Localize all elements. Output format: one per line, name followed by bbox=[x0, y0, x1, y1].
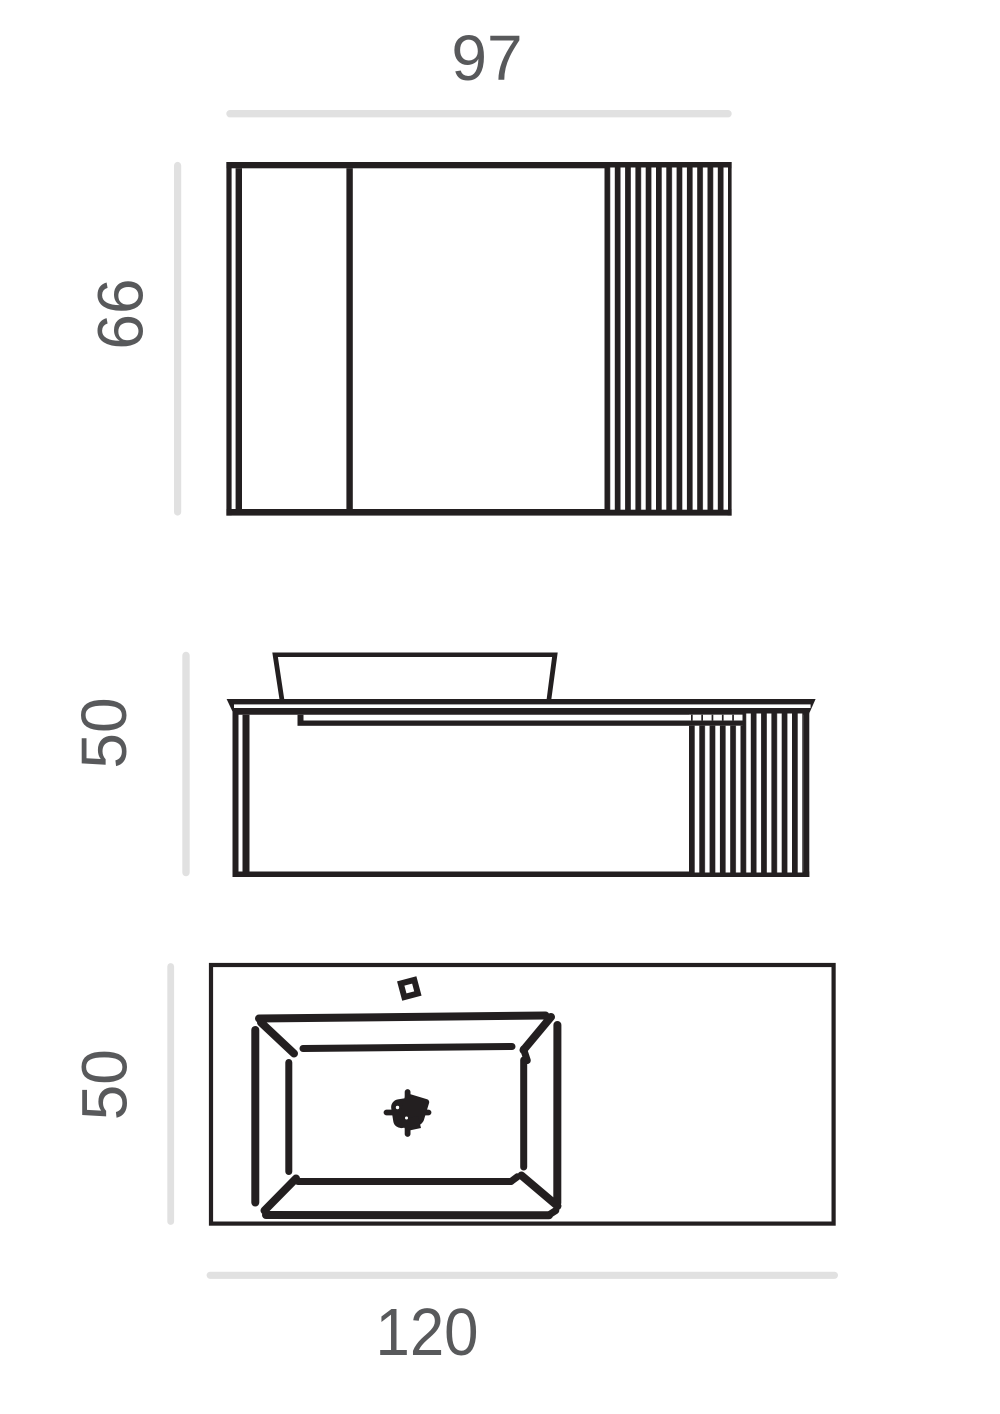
svg-text:97: 97 bbox=[451, 22, 522, 94]
svg-text:66: 66 bbox=[85, 278, 157, 349]
svg-text:50: 50 bbox=[68, 697, 140, 768]
svg-text:50: 50 bbox=[69, 1049, 141, 1120]
svg-text:120: 120 bbox=[376, 1295, 479, 1370]
